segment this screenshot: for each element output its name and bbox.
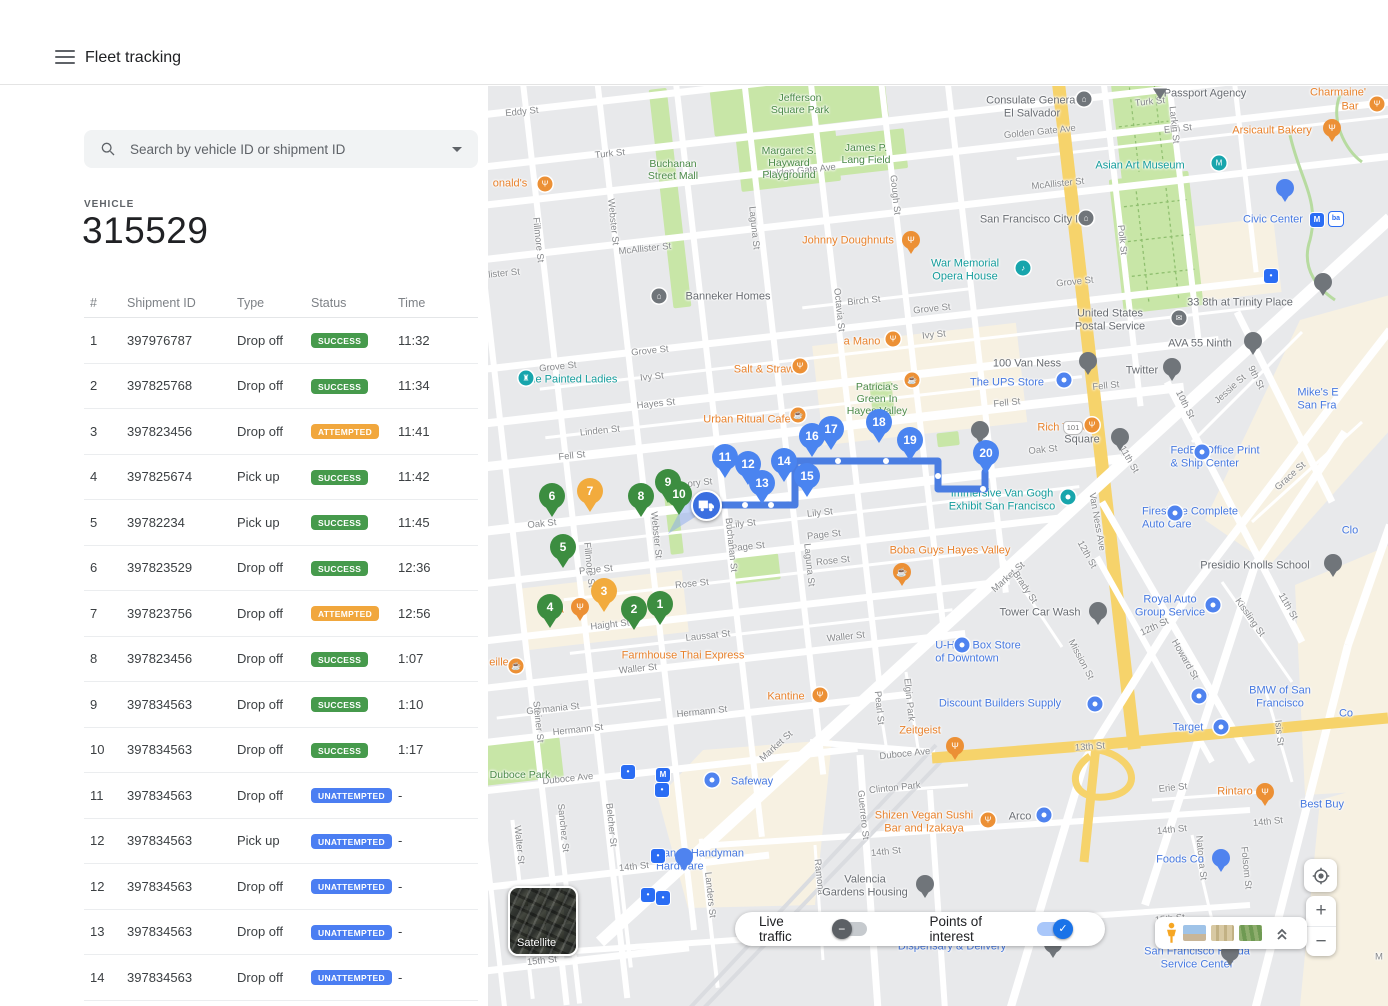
- cell-type: Drop off: [237, 378, 311, 393]
- route-stop-marker-17[interactable]: 17: [818, 416, 844, 450]
- toggle-on-knob: ✓: [1053, 919, 1073, 939]
- sidebar: Search by vehicle ID or shipment ID VEHI…: [0, 86, 488, 1006]
- route-stop-marker-6[interactable]: 6: [539, 483, 565, 517]
- cell-shipment-id: 397825768: [127, 378, 237, 393]
- cell-shipment-id: 397834563: [127, 833, 237, 848]
- table-row[interactable]: 7397823756Drop offATTEMPTED12:56: [84, 591, 478, 637]
- cell-num: 12: [90, 879, 127, 894]
- cell-shipment-id: 397834563: [127, 879, 237, 894]
- map-canvas[interactable]: Eddy StTurk StTurk StElm StGolden Gate A…: [488, 86, 1388, 1006]
- route-stop-marker-15[interactable]: 15: [794, 463, 820, 497]
- live-traffic-label: Live traffic: [759, 914, 814, 944]
- street-view-bar: [1155, 917, 1307, 949]
- table-row[interactable]: 12397834563Drop offUNATTEMPTED-: [84, 864, 478, 910]
- table-row[interactable]: 3397823456Drop offATTEMPTED11:41: [84, 409, 478, 455]
- my-location-icon: [1312, 867, 1330, 885]
- table-row[interactable]: 14397834563Drop offUNATTEMPTED-: [84, 955, 478, 1001]
- cell-time: 11:32: [398, 333, 478, 348]
- cell-time: 11:41: [398, 424, 478, 439]
- cell-shipment-id: 397823456: [127, 424, 237, 439]
- cell-num: 2: [90, 378, 127, 393]
- status-badge: UNATTEMPTED: [311, 788, 392, 803]
- cell-shipment-id: 397823456: [127, 651, 237, 666]
- cell-time: 1:07: [398, 651, 478, 666]
- status-badge: SUCCESS: [311, 561, 368, 576]
- table-row[interactable]: 4397825674Pick upSUCCESS11:42: [84, 455, 478, 501]
- cell-time: -: [398, 879, 478, 894]
- status-badge: UNATTEMPTED: [311, 879, 392, 894]
- cell-num: 4: [90, 469, 127, 484]
- collapse-chevrons-icon[interactable]: [1275, 926, 1289, 941]
- route-stop-marker-20[interactable]: 20: [973, 440, 999, 474]
- cell-type: Drop off: [237, 651, 311, 666]
- route-stop-marker-4[interactable]: 4: [537, 594, 563, 628]
- cell-num: 7: [90, 606, 127, 621]
- my-location-button[interactable]: [1304, 859, 1337, 892]
- cell-num: 11: [90, 788, 127, 803]
- cell-time: -: [398, 788, 478, 803]
- vehicle-id: 315529: [82, 210, 208, 252]
- table-row[interactable]: 2397825768Drop offSUCCESS11:34: [84, 364, 478, 410]
- status-badge: SUCCESS: [311, 515, 368, 530]
- satellite-label: Satellite: [517, 937, 556, 949]
- col-num: #: [90, 296, 127, 310]
- col-time: Time: [398, 296, 478, 310]
- cell-time: 1:10: [398, 697, 478, 712]
- status-badge: SUCCESS: [311, 697, 368, 712]
- cell-type: Drop off: [237, 742, 311, 757]
- vehicle-marker[interactable]: [691, 490, 722, 521]
- imagery-thumbnail[interactable]: [1211, 925, 1234, 941]
- cell-shipment-id: 397834563: [127, 697, 237, 712]
- map-markers-layer: 1234567891011121314151617181920: [488, 86, 1388, 1006]
- route-stop-marker-18[interactable]: 18: [866, 409, 892, 443]
- cell-time: -: [398, 833, 478, 848]
- table-header: # Shipment ID Type Status Time: [84, 288, 478, 318]
- table-row[interactable]: 13397834563Drop offUNATTEMPTED-: [84, 910, 478, 956]
- cell-type: Drop off: [237, 879, 311, 894]
- imagery-thumbnail[interactable]: [1183, 925, 1206, 941]
- map-toggle-bar: Live traffic − Points of interest ✓: [735, 912, 1105, 946]
- route-stop-marker-19[interactable]: 19: [897, 427, 923, 461]
- cell-num: 1: [90, 333, 127, 348]
- col-shipment-id: Shipment ID: [127, 296, 237, 310]
- cell-time: 11:45: [398, 515, 478, 530]
- cell-type: Drop off: [237, 424, 311, 439]
- table-row[interactable]: 10397834563Drop offSUCCESS1:17: [84, 728, 478, 774]
- cell-shipment-id: 39782234: [127, 515, 237, 530]
- status-badge: ATTEMPTED: [311, 606, 379, 621]
- cell-shipment-id: 397825674: [127, 469, 237, 484]
- cell-type: Pick up: [237, 515, 311, 530]
- cell-time: 11:34: [398, 378, 478, 393]
- cell-shipment-id: 397834563: [127, 788, 237, 803]
- cell-num: 10: [90, 742, 127, 757]
- table-body: 1397976787Drop offSUCCESS11:322397825768…: [84, 318, 478, 1001]
- cell-time: 12:36: [398, 560, 478, 575]
- zoom-out-button[interactable]: −: [1306, 926, 1336, 956]
- status-badge: SUCCESS: [311, 743, 368, 758]
- cell-time: -: [398, 924, 478, 939]
- status-badge: SUCCESS: [311, 652, 368, 667]
- cell-time: -: [398, 970, 478, 985]
- route-stop-marker-5[interactable]: 5: [550, 534, 576, 568]
- cell-num: 13: [90, 924, 127, 939]
- col-status: Status: [311, 296, 398, 310]
- search-input[interactable]: Search by vehicle ID or shipment ID: [84, 130, 478, 168]
- cell-type: Pick up: [237, 833, 311, 848]
- search-icon: [100, 141, 116, 157]
- cell-num: 12: [90, 833, 127, 848]
- table-row[interactable]: 539782234Pick upSUCCESS11:45: [84, 500, 478, 546]
- cell-num: 14: [90, 970, 127, 985]
- cell-time: 11:42: [398, 469, 478, 484]
- table-row[interactable]: 9397834563Drop offSUCCESS1:10: [84, 682, 478, 728]
- points-of-interest-toggle[interactable]: ✓: [1037, 922, 1073, 936]
- cell-type: Drop off: [237, 606, 311, 621]
- pegman-icon[interactable]: [1165, 922, 1178, 944]
- status-badge: SUCCESS: [311, 470, 368, 485]
- route-stop-marker-7[interactable]: 7: [577, 478, 603, 512]
- cell-num: 6: [90, 560, 127, 575]
- route-stop-marker-8[interactable]: 8: [628, 483, 654, 517]
- menu-icon[interactable]: [55, 50, 75, 64]
- truck-icon: [698, 499, 715, 512]
- live-traffic-toggle[interactable]: −: [832, 922, 868, 936]
- top-app-bar: Fleet tracking: [0, 0, 1388, 85]
- cell-num: 3: [90, 424, 127, 439]
- status-badge: SUCCESS: [311, 333, 368, 348]
- cell-shipment-id: 397823756: [127, 606, 237, 621]
- col-type: Type: [237, 296, 311, 310]
- table-row[interactable]: 8397823456Drop offSUCCESS1:07: [84, 637, 478, 683]
- cell-type: Drop off: [237, 788, 311, 803]
- cell-shipment-id: 397834563: [127, 970, 237, 985]
- imagery-thumbnail[interactable]: [1239, 925, 1262, 941]
- cell-type: Drop off: [237, 333, 311, 348]
- table-row[interactable]: 11397834563Drop offUNATTEMPTED-: [84, 773, 478, 819]
- vehicle-section-label: VEHICLE: [84, 199, 134, 210]
- cell-time: 1:17: [398, 742, 478, 757]
- route-stop-marker-2[interactable]: 2: [621, 596, 647, 630]
- route-stop-marker-10[interactable]: 10: [666, 481, 692, 515]
- cell-shipment-id: 397823529: [127, 560, 237, 575]
- route-stop-marker-1[interactable]: 1: [647, 591, 673, 625]
- chevron-down-icon[interactable]: [452, 147, 462, 152]
- cell-type: Drop off: [237, 970, 311, 985]
- table-row[interactable]: 1397976787Drop offSUCCESS11:32: [84, 318, 478, 364]
- table-row[interactable]: 12397834563Pick upUNATTEMPTED-: [84, 819, 478, 865]
- shipments-table: # Shipment ID Type Status Time 139797678…: [84, 288, 478, 1001]
- cell-type: Drop off: [237, 924, 311, 939]
- zoom-controls: + −: [1306, 896, 1336, 956]
- cell-time: 12:56: [398, 606, 478, 621]
- cell-num: 9: [90, 697, 127, 712]
- table-row[interactable]: 6397823529Drop offSUCCESS12:36: [84, 546, 478, 592]
- cell-num: 5: [90, 515, 127, 530]
- route-stop-marker-3[interactable]: 3: [591, 578, 617, 612]
- toggle-off-knob: −: [832, 919, 852, 939]
- status-badge: UNATTEMPTED: [311, 834, 392, 849]
- cell-shipment-id: 397834563: [127, 924, 237, 939]
- cell-type: Drop off: [237, 697, 311, 712]
- satellite-view-button[interactable]: Satellite: [508, 886, 578, 956]
- zoom-in-button[interactable]: +: [1306, 896, 1336, 926]
- status-badge: UNATTEMPTED: [311, 970, 392, 985]
- cell-type: Drop off: [237, 560, 311, 575]
- status-badge: UNATTEMPTED: [311, 925, 392, 940]
- page-title: Fleet tracking: [85, 49, 181, 67]
- status-badge: ATTEMPTED: [311, 424, 379, 439]
- cell-shipment-id: 397834563: [127, 742, 237, 757]
- search-placeholder: Search by vehicle ID or shipment ID: [130, 142, 452, 157]
- cell-type: Pick up: [237, 469, 311, 484]
- cell-num: 8: [90, 651, 127, 666]
- status-badge: SUCCESS: [311, 379, 368, 394]
- cell-shipment-id: 397976787: [127, 333, 237, 348]
- points-of-interest-label: Points of interest: [929, 914, 1019, 944]
